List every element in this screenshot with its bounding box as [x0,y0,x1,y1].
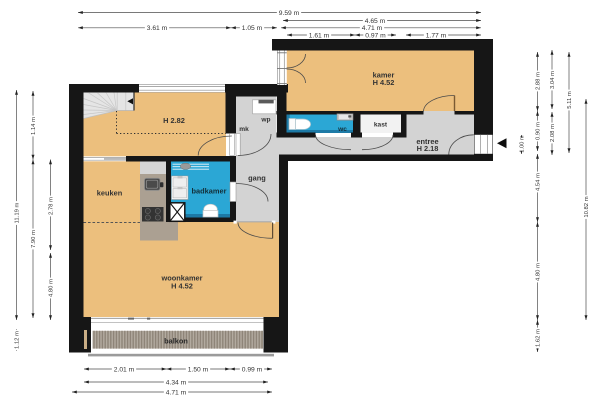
svg-text:mk: mk [239,126,249,133]
svg-text:9.59 m: 9.59 m [279,10,300,17]
svg-text:H 4.52: H 4.52 [373,78,395,87]
svg-text:1.77 m: 1.77 m [426,32,447,39]
svg-text:0.99 m: 0.99 m [242,366,263,373]
svg-text:1.05 m: 1.05 m [242,25,263,32]
svg-text:7.90 m: 7.90 m [31,230,37,248]
svg-text:4.71 m: 4.71 m [166,389,187,396]
svg-text:5.11 m: 5.11 m [567,91,573,109]
svg-text:H 2.18: H 2.18 [417,144,439,153]
svg-text:0.90 m: 0.90 m [536,122,542,140]
svg-text:H 4.52: H 4.52 [171,282,193,291]
svg-text:4.65 m: 4.65 m [365,18,386,25]
svg-text:4.71 m: 4.71 m [362,25,383,32]
svg-text:4.54 m: 4.54 m [536,173,542,191]
svg-text:1.62 m: 1.62 m [536,329,542,347]
svg-text:1.61 m: 1.61 m [309,32,330,39]
svg-text:4.80 m: 4.80 m [536,263,542,281]
svg-text:2.88 m: 2.88 m [536,72,542,90]
svg-text:3.61 m: 3.61 m [147,25,168,32]
svg-text:11.19 m: 11.19 m [15,202,21,223]
svg-text:badkamer: badkamer [192,187,227,196]
svg-text:H 2.82: H 2.82 [163,116,185,125]
svg-text:balkon: balkon [164,337,188,346]
svg-text:4.34 m: 4.34 m [166,379,187,386]
svg-text:gang: gang [248,174,266,183]
svg-text:4.80 m: 4.80 m [49,279,55,297]
svg-text:2.78 m: 2.78 m [49,197,55,215]
svg-text:1.12 m: 1.12 m [15,331,21,349]
svg-text:wp: wp [260,117,270,124]
svg-text:2.08 m: 2.08 m [550,124,556,142]
svg-text:1.00 m: 1.00 m [520,135,526,152]
svg-text:10.82 m: 10.82 m [584,196,590,217]
svg-text:kast: kast [374,122,388,129]
svg-text:0.97 m: 0.97 m [365,32,386,39]
svg-text:2.01 m: 2.01 m [114,366,135,373]
svg-text:1.14 m: 1.14 m [31,117,37,135]
svg-text:keuken: keuken [97,189,123,198]
svg-text:wc: wc [337,126,347,133]
svg-text:3.04 m: 3.04 m [550,71,556,89]
svg-text:1.50 m: 1.50 m [188,366,209,373]
